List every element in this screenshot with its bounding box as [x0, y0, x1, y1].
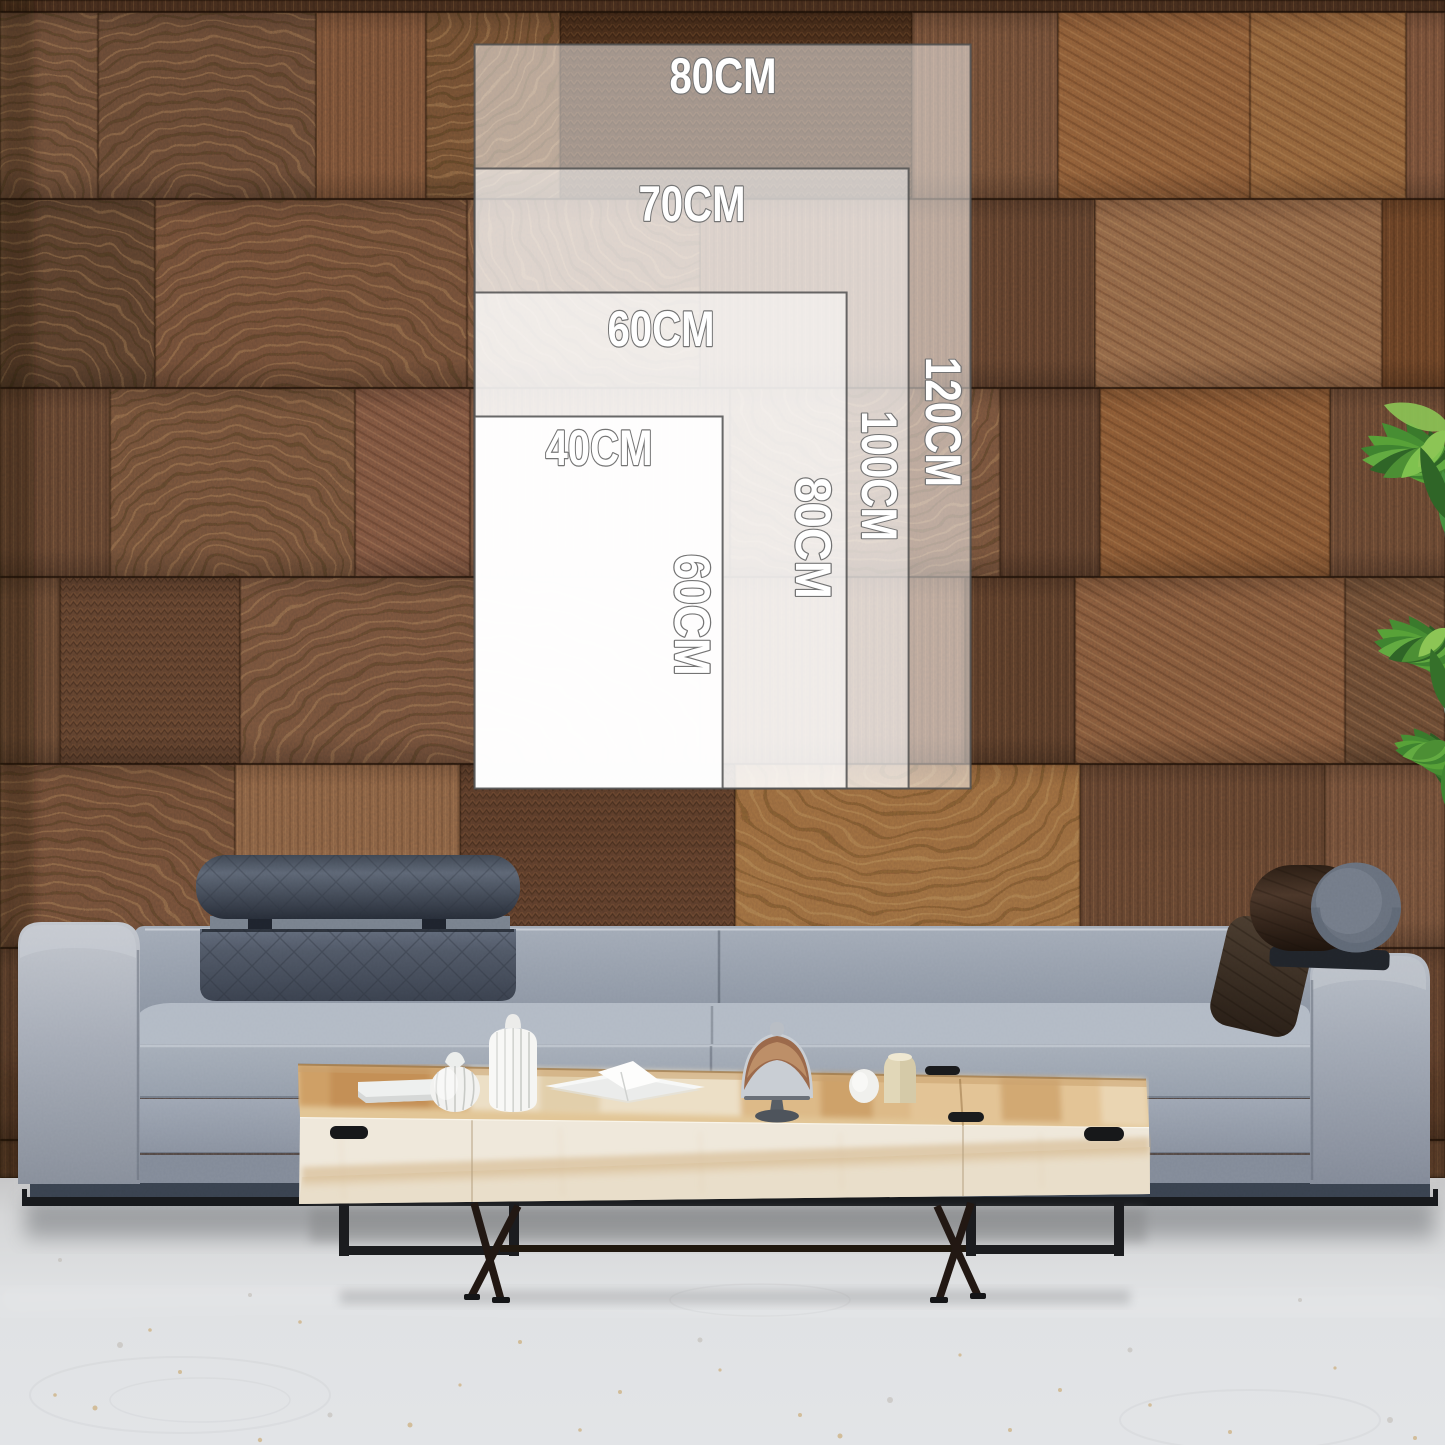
svg-text:100CM: 100CM — [851, 411, 907, 541]
svg-text:80CM: 80CM — [785, 477, 841, 599]
svg-text:120CM: 120CM — [915, 357, 971, 487]
svg-text:60CM: 60CM — [664, 554, 720, 676]
svg-text:80CM: 80CM — [670, 48, 777, 104]
svg-text:40CM: 40CM — [546, 420, 653, 476]
svg-text:70CM: 70CM — [639, 176, 746, 232]
svg-text:60CM: 60CM — [608, 301, 715, 357]
